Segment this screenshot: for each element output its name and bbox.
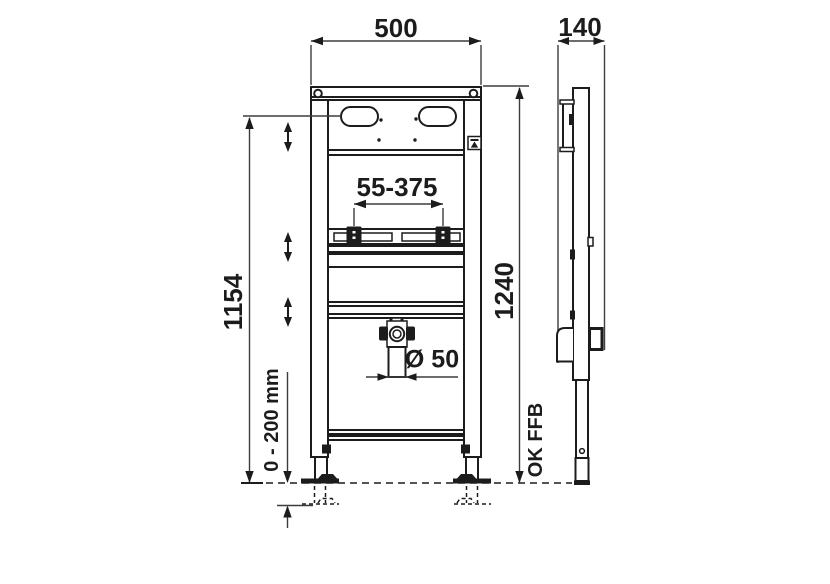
mounting-dot [379,118,382,121]
corner-hole-right [470,90,478,98]
frame-left-rail [311,87,328,457]
level-indicator-symbol [468,137,481,150]
dim-foot-adjustment-0-200 [283,372,291,528]
technical-drawing-canvas: 500 140 55-375 Ø 50 1154 1240 0 - 200 mm… [0,0,830,584]
side-view [557,45,605,485]
fixture-slot-right [402,233,460,241]
drain-circle-inner [393,330,401,338]
label-drain-diameter: Ø 50 [405,348,459,373]
mounting-dot [377,138,380,141]
crossbar-middle [328,302,464,318]
leg-clip-right [461,445,470,454]
arrowhead-up [283,506,291,518]
foot-side [576,458,589,481]
tap-slot-right [419,107,456,126]
label-foot-adjustment: 0 - 200 mm [262,368,282,471]
drain-pipe [389,347,406,377]
installation-frame-drawing [0,0,830,584]
frame-profile-side [573,88,589,380]
fixture-mark-side [570,311,575,320]
crossbar-band-lower [328,254,464,267]
drain-wing-right [406,327,415,341]
arrowhead-right [378,373,389,381]
top-bracket-side [560,100,574,152]
crossbar-band-upper [328,246,464,252]
label-frame-height: 1240 [491,262,517,320]
label-finished-floor-level: OK FFB [526,403,546,477]
drain-wing-left [379,327,388,341]
arrowhead-down [515,471,523,483]
label-fixture-spacing: 55-375 [357,174,438,200]
arrowhead-left [311,37,323,45]
mounting-dot [414,117,417,120]
arrowhead-up [245,117,253,129]
dim-frame-width-500 [311,37,481,85]
frame-top-rail [311,87,481,100]
label-frame-depth: 140 [558,14,601,40]
crossbar-bottom [328,430,464,440]
tap-slot-left [341,107,378,126]
arrowhead-down [283,471,291,483]
mounting-dot [413,138,416,141]
front-view [301,87,491,504]
leg-pin-hole [580,449,585,454]
adjust-arrow [284,232,292,262]
extended-foot-right [454,486,491,504]
threaded-fixture-left [347,227,362,246]
adjust-arrow [284,297,292,327]
foot-base-side [574,481,590,486]
extended-foot-left [302,486,339,504]
fixture-mark-side [570,250,575,260]
fixture-slot-left [334,233,392,241]
leg-clip-left [322,445,331,454]
corner-hole-left [314,90,322,98]
threaded-fixture-right [436,227,451,246]
dim-fixture-spacing-55-375 [354,200,443,226]
adjust-arrow [284,122,292,152]
clip-tab-side [588,238,593,247]
arrowhead-down [245,471,253,483]
label-slot-height: 1154 [220,274,246,330]
drain-bracket-side [557,328,573,362]
arrowhead-right [469,37,481,45]
foot-plate-right [453,474,491,484]
arrowhead-up [515,87,523,99]
leg-side [576,380,588,458]
dim-drain-diameter-50 [366,373,458,381]
drain-elbow-side [590,329,603,350]
arrowhead-left [406,373,417,381]
label-frame-width: 500 [374,15,417,41]
